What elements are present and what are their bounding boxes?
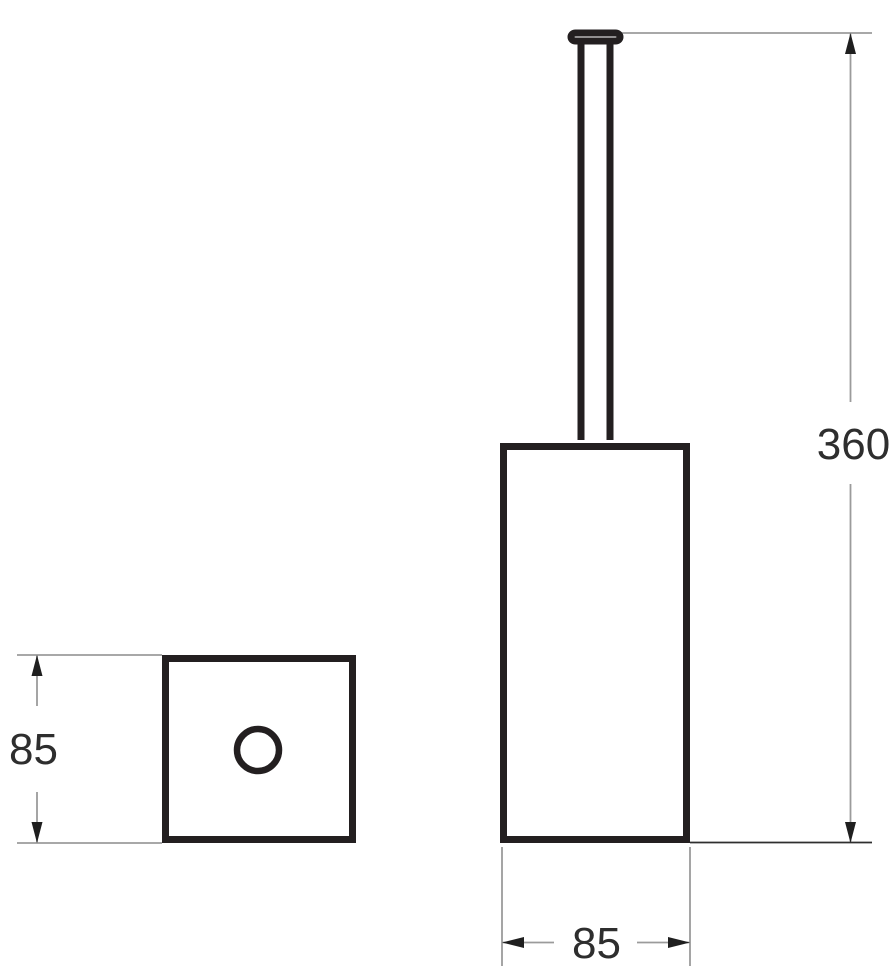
- width-arrow-left-icon: [502, 937, 524, 948]
- brush-handle-cap: [571, 33, 620, 41]
- depth-arrow-up-icon: [32, 655, 43, 676]
- height-arrow-down-icon: [845, 822, 856, 843]
- width-dimension: 85: [502, 843, 872, 969]
- technical-drawing-page: 360 85 85: [0, 0, 895, 971]
- depth-dimension-label: 85: [9, 725, 58, 774]
- depth-arrow-down-icon: [32, 822, 43, 843]
- brush-holder-body: [504, 447, 687, 840]
- top-view-hole: [237, 729, 279, 771]
- depth-dimension: 85: [9, 655, 162, 843]
- width-dimension-label: 85: [572, 919, 621, 968]
- technical-drawing-canvas: 360 85 85: [0, 0, 895, 971]
- height-arrow-up-icon: [845, 33, 856, 54]
- height-dimension-label: 360: [817, 420, 890, 469]
- width-arrow-right-icon: [668, 937, 690, 948]
- front-view: [504, 33, 687, 840]
- top-view: [166, 659, 353, 840]
